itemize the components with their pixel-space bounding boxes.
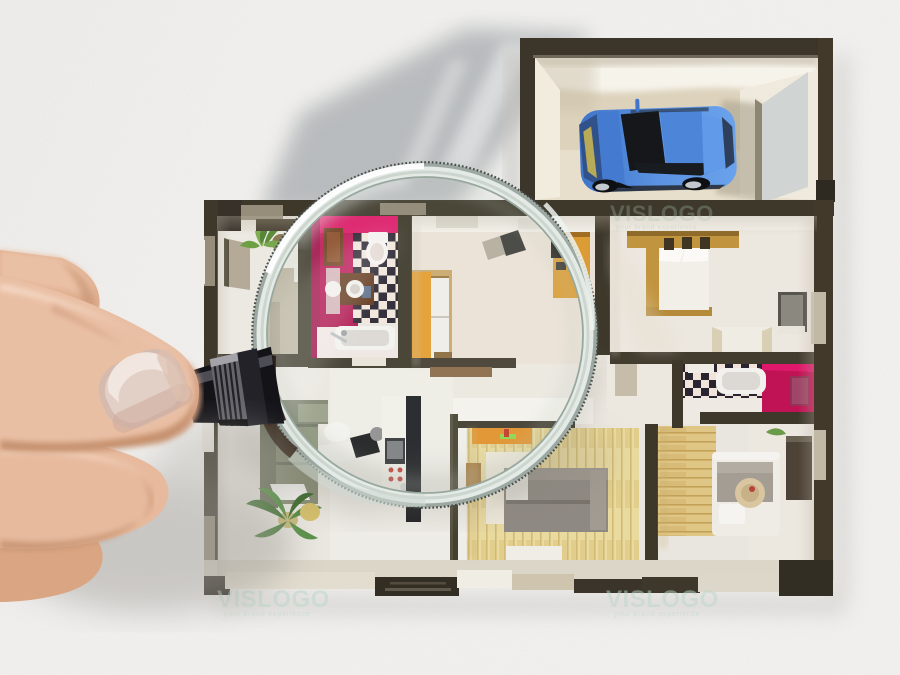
- svg-text:your brand experience: your brand experience: [224, 611, 310, 618]
- svg-text:VISLOGO: VISLOGO: [610, 201, 714, 226]
- svg-text:your brand experience: your brand experience: [616, 224, 697, 231]
- svg-text:your brand experience: your brand experience: [614, 611, 700, 618]
- svg-text:VISLOGO: VISLOGO: [606, 586, 719, 613]
